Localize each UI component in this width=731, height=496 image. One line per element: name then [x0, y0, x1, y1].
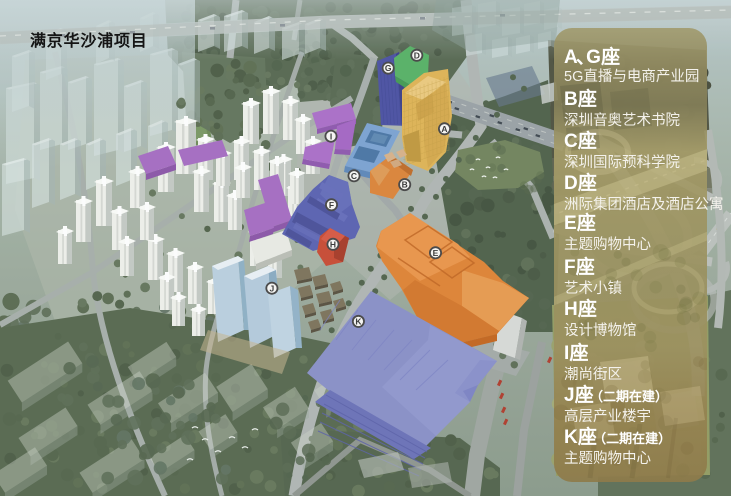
svg-text:E: E: [433, 248, 439, 258]
svg-text:D: D: [414, 50, 420, 60]
svg-text:A: A: [441, 124, 447, 134]
svg-text:H: H: [330, 239, 336, 249]
svg-text:B: B: [402, 180, 408, 190]
svg-text:F: F: [329, 200, 334, 210]
svg-text:G: G: [385, 63, 392, 73]
svg-text:K: K: [355, 317, 362, 327]
svg-text:C: C: [351, 171, 357, 181]
svg-text:I: I: [330, 131, 332, 141]
svg-text:J: J: [270, 283, 275, 293]
